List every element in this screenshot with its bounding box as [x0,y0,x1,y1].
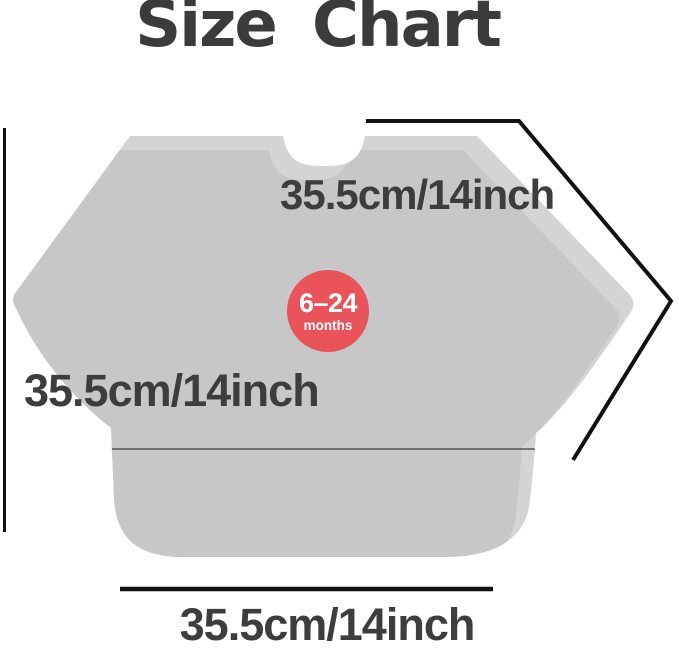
page-title: Size Chart [0,0,635,60]
age-range-text: 6–24 [299,290,357,317]
size-chart-page: Size Chart 35.5cm/14inch 35.5cm/14inch 3… [0,0,679,654]
age-range-unit: months [304,318,353,334]
age-range-badge: 6–24 months [287,270,369,352]
measurement-bottom: 35.5cm/14inch [160,602,494,647]
measurement-top-edge: 35.5cm/14inch [280,174,554,216]
measurement-width: 35.5cm/14inch [24,368,319,413]
